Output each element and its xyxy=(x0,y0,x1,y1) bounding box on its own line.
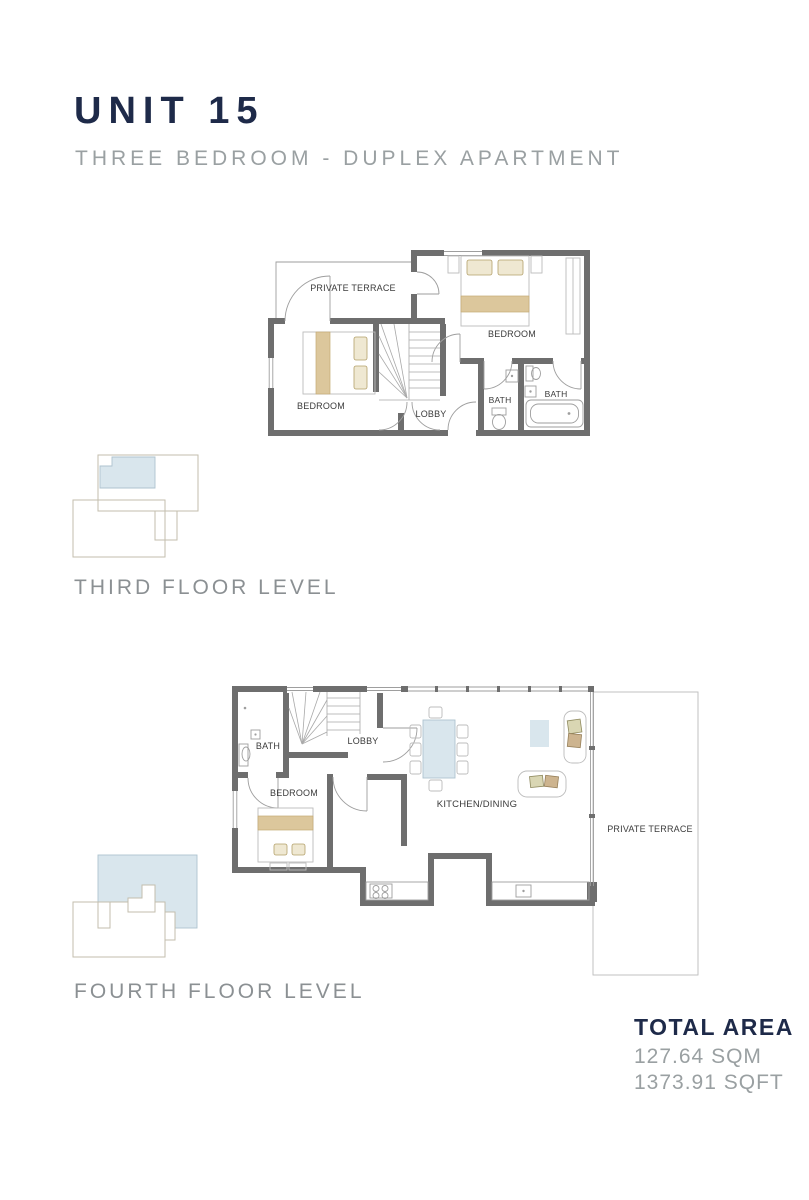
kitchen-counters xyxy=(366,882,589,900)
room-label-terrace: PRIVATE TERRACE xyxy=(607,824,693,834)
bed-bedroom-right xyxy=(448,256,542,326)
room-label-bedroom-left: BEDROOM xyxy=(297,401,345,411)
total-area-sqm: 127.64 SQM xyxy=(634,1044,794,1070)
keyplan-third-floor xyxy=(70,448,205,566)
floorplan-third-floor: PRIVATE TERRACE BEDROOM BEDROOM LOBBY BA… xyxy=(268,240,598,442)
wardrobe xyxy=(566,258,580,334)
page-title: UNIT 15 xyxy=(74,90,264,133)
total-area-heading: TOTAL AREA xyxy=(634,1014,794,1040)
room-label-bedroom-right: BEDROOM xyxy=(488,329,536,339)
highlight-unit-location xyxy=(100,457,155,488)
fourth-floor-label: FOURTH FLOOR LEVEL xyxy=(74,980,365,1004)
sofa-right xyxy=(564,711,586,763)
room-label-kitchen-dining: KITCHEN/DINING xyxy=(437,799,517,810)
room-label-bath-large: BATH xyxy=(545,389,568,399)
room-label-bedroom: BEDROOM xyxy=(270,788,318,798)
room-label-bath-small: BATH xyxy=(489,395,512,405)
room-label-terrace: PRIVATE TERRACE xyxy=(310,283,396,293)
third-floor-label: THIRD FLOOR LEVEL xyxy=(74,576,339,600)
room-label-bath: BATH xyxy=(256,741,280,751)
room-label-lobby: LOBBY xyxy=(347,736,378,746)
total-area-sqft: 1373.91 SQFT xyxy=(634,1070,794,1096)
sofa-lower xyxy=(518,771,566,797)
room-label-lobby: LOBBY xyxy=(415,409,446,419)
rug xyxy=(530,720,549,747)
bed-bedroom xyxy=(258,808,313,870)
page-subtitle: THREE BEDROOM - DUPLEX APARTMENT xyxy=(75,147,623,171)
floorplan-fourth-floor: BATH LOBBY BEDROOM KITCHEN/DINING PRIVAT… xyxy=(232,686,702,988)
total-area-block: TOTAL AREA 127.64 SQM 1373.91 SQFT xyxy=(634,1014,794,1096)
keyplan-fourth-floor xyxy=(70,850,210,975)
bath-fixtures xyxy=(239,707,260,766)
dining-table xyxy=(410,707,468,791)
bed-bedroom-left xyxy=(303,332,375,394)
stairs xyxy=(379,324,440,400)
